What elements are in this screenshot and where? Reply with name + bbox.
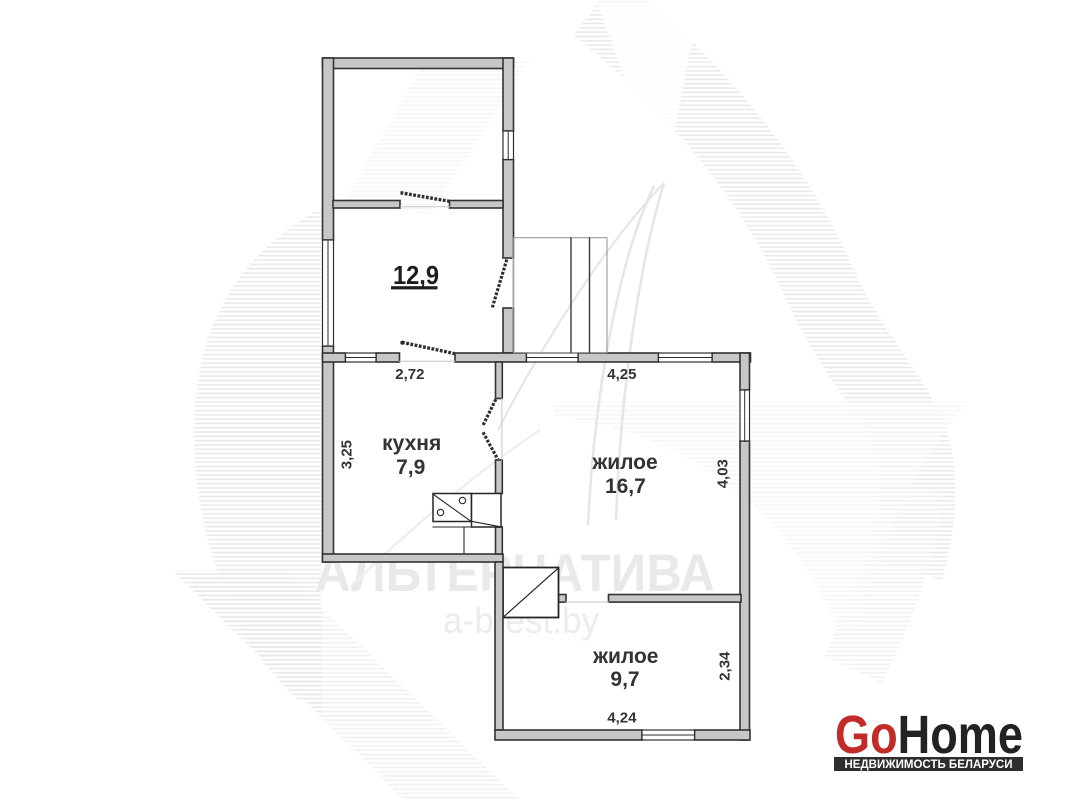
svg-text:4,24: 4,24: [607, 710, 637, 727]
svg-text:жилое: жилое: [591, 451, 657, 474]
svg-text:жилое: жилое: [592, 645, 658, 668]
svg-text:4,25: 4,25: [607, 366, 636, 383]
svg-text:12,9: 12,9: [393, 260, 439, 290]
svg-text:4,03: 4,03: [714, 459, 731, 488]
svg-text:7,9: 7,9: [396, 456, 425, 479]
svg-text:кухня: кухня: [382, 432, 441, 455]
svg-text:3,25: 3,25: [339, 440, 356, 469]
svg-text:9,7: 9,7: [610, 668, 639, 691]
svg-text:GoHome: GoHome: [835, 705, 1023, 765]
svg-text:16,7: 16,7: [605, 475, 646, 498]
svg-text:НЕДВИЖИМОСТЬ БЕЛАРУСИ: НЕДВИЖИМОСТЬ БЕЛАРУСИ: [845, 757, 1013, 771]
svg-text:2,34: 2,34: [716, 651, 733, 681]
svg-text:2,72: 2,72: [395, 366, 424, 383]
